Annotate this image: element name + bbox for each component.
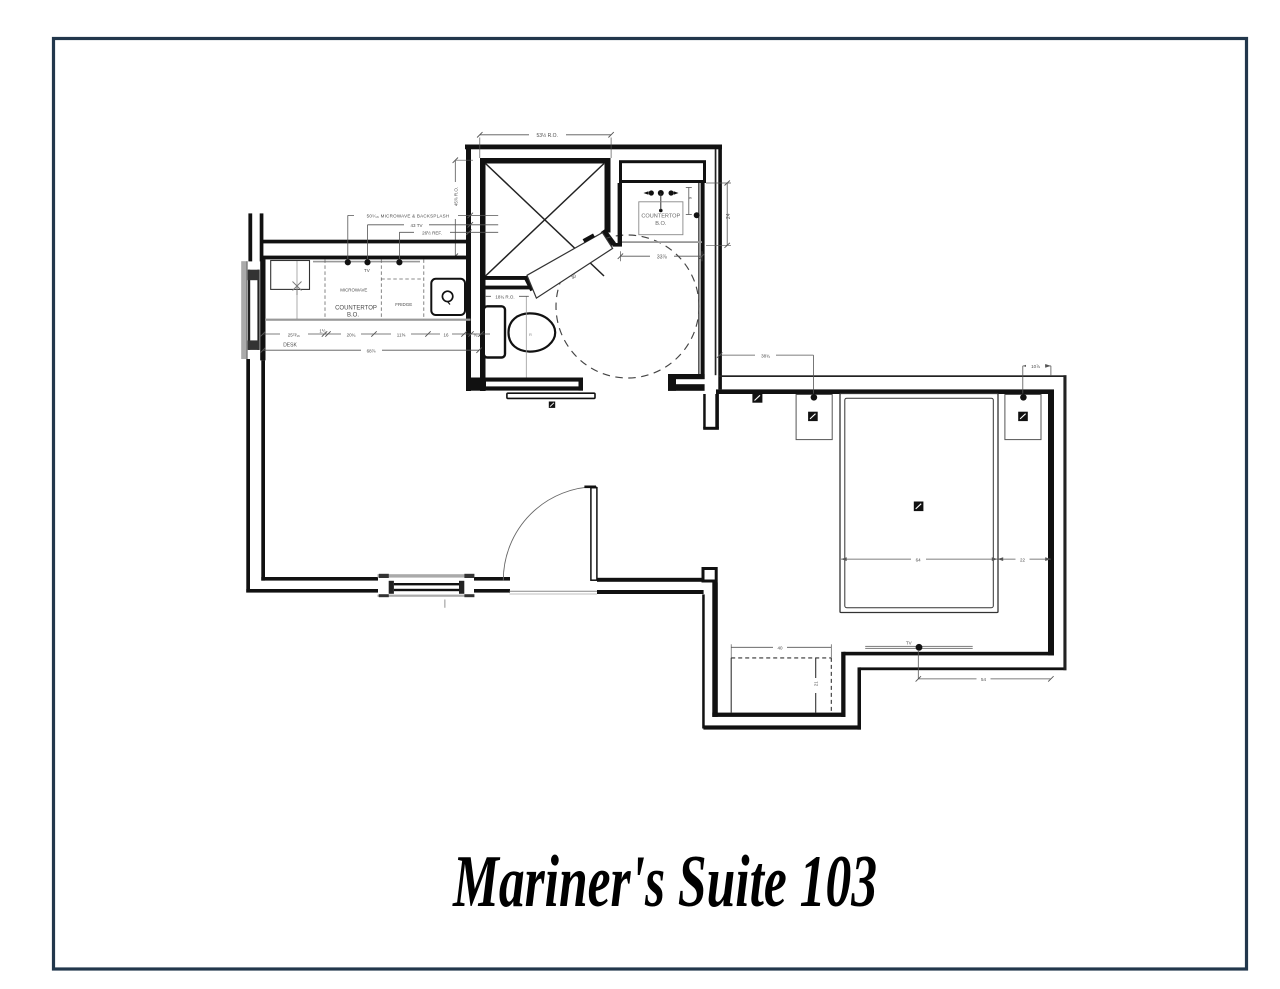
svg-text:22: 22 <box>1020 557 1026 562</box>
svg-text:¾: ¾ <box>474 332 478 337</box>
svg-text:B.O.: B.O. <box>655 221 667 227</box>
svg-text:24: 24 <box>726 213 732 219</box>
svg-text:54: 54 <box>981 677 987 682</box>
svg-text:53½ R.O.: 53½ R.O. <box>536 132 557 139</box>
svg-text:MICROWAVE: MICROWAVE <box>340 288 367 293</box>
svg-text:33⅞: 33⅞ <box>657 255 668 261</box>
svg-text:DESK: DESK <box>283 343 297 349</box>
svg-text:50⁵⁄₁₆ MICROWAVE & BACKSPLASH: 50⁵⁄₁₆ MICROWAVE & BACKSPLASH <box>367 214 450 219</box>
svg-text:26½ REF.: 26½ REF. <box>422 230 442 236</box>
svg-text:18¾ R.O.: 18¾ R.O. <box>495 294 514 299</box>
svg-text:20¾: 20¾ <box>347 332 356 337</box>
svg-text:40: 40 <box>777 646 783 651</box>
svg-text:38¾: 38¾ <box>761 353 770 358</box>
svg-text:68⅞: 68⅞ <box>367 349 376 354</box>
svg-text:43 TV: 43 TV <box>411 223 423 228</box>
svg-text:COUNTERTOP: COUNTERTOP <box>335 306 377 312</box>
svg-text:COUNTERTOP: COUNTERTOP <box>641 214 680 220</box>
svg-text:FRIDGE: FRIDGE <box>395 302 412 307</box>
svg-text:9: 9 <box>688 196 693 199</box>
svg-text:TV: TV <box>906 640 912 645</box>
svg-text:10⅞: 10⅞ <box>1031 364 1040 369</box>
svg-text:64: 64 <box>916 557 922 562</box>
svg-text:45⅞ R.O.: 45⅞ R.O. <box>453 187 458 206</box>
svg-text:21: 21 <box>814 681 819 687</box>
svg-text:30: 30 <box>570 273 577 280</box>
svg-text:16: 16 <box>443 332 449 337</box>
svg-text:11⅝: 11⅝ <box>397 332 406 337</box>
svg-text:B.O.: B.O. <box>347 313 359 319</box>
svg-text:1½: 1½ <box>319 327 326 333</box>
svg-text:25¹³⁄₁₆: 25¹³⁄₁₆ <box>288 332 300 337</box>
svg-text:Mariner's Suite 103: Mariner's Suite 103 <box>452 841 877 923</box>
svg-text:TV: TV <box>364 268 370 273</box>
svg-text:R: R <box>529 332 532 337</box>
